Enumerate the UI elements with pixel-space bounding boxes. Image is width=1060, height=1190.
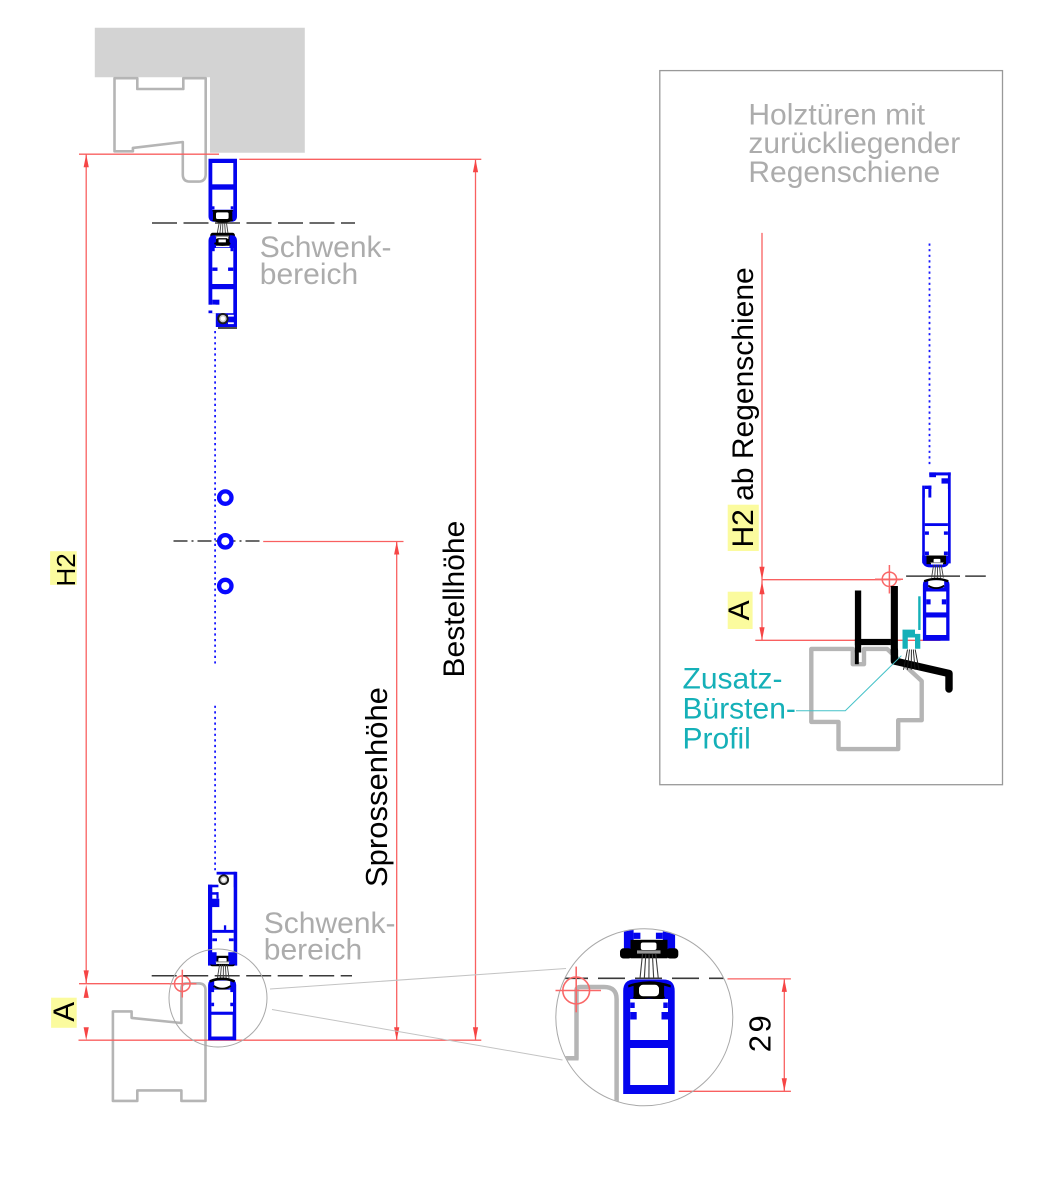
svg-text:Profil: Profil bbox=[683, 722, 751, 755]
svg-text:H2: H2 bbox=[51, 553, 81, 586]
svg-text:zurückliegender: zurückliegender bbox=[748, 127, 960, 160]
svg-text:A: A bbox=[48, 1002, 81, 1022]
svg-text:Regenschiene: Regenschiene bbox=[748, 156, 940, 189]
svg-text:bereich: bereich bbox=[260, 258, 358, 291]
svg-text:H2 ab Regenschiene: H2 ab Regenschiene bbox=[727, 267, 760, 547]
svg-text:Bestellhöhe: Bestellhöhe bbox=[438, 521, 471, 678]
svg-text:29: 29 bbox=[743, 1013, 778, 1052]
svg-text:bereich: bereich bbox=[264, 933, 362, 966]
svg-text:Sprossenhöhe: Sprossenhöhe bbox=[359, 687, 394, 887]
svg-text:A: A bbox=[723, 600, 756, 620]
svg-text:Bürsten-: Bürsten- bbox=[683, 693, 796, 726]
svg-text:Zusatz-: Zusatz- bbox=[683, 662, 783, 695]
